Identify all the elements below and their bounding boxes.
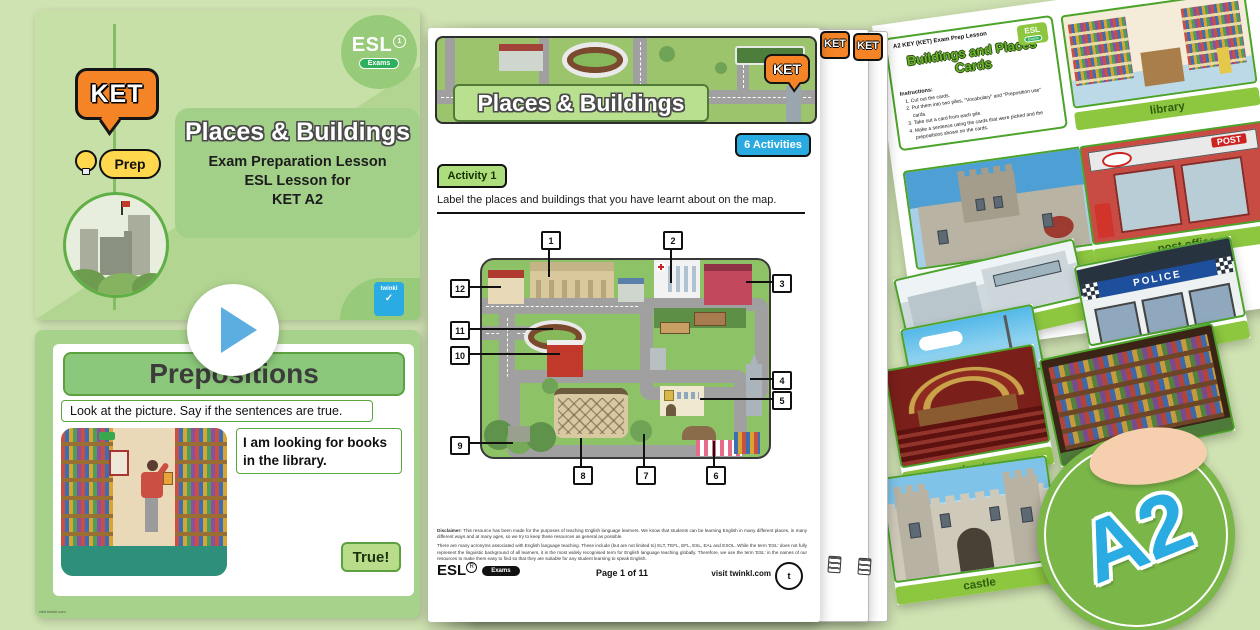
slide-footer-link: visit twinkl.com [39, 609, 66, 614]
bridge-illustration [682, 426, 716, 440]
worksheet-footer: ESLRExams Page 1 of 11 visit twinkl.com … [437, 562, 807, 588]
activities-count-badge: 6 Activities [735, 133, 811, 157]
sentence-box: I am looking for books in the library. [236, 428, 402, 474]
true-button[interactable]: True! [341, 542, 401, 572]
town-map [480, 258, 771, 459]
stamp-page2 [827, 556, 841, 574]
worksheet-title: Places & Buildings [453, 84, 709, 122]
map-label-5: 5 [772, 391, 792, 410]
map-label-6: 6 [706, 466, 726, 485]
castle-gatehouse-image [880, 455, 1061, 583]
park-hedge-illustration [654, 308, 746, 328]
footer-site-link: visit twinkl.com [711, 569, 771, 578]
esl-logo-text: ESL [1024, 25, 1041, 35]
activity-1-badge: Activity 1 [437, 164, 507, 188]
post-office-image: POST [1079, 121, 1260, 246]
esl-logo: ESL Exams [1016, 22, 1048, 46]
lesson-subtitle-1: Exam Preparation Lesson [175, 153, 420, 172]
map-label-4: 4 [772, 371, 792, 390]
resource-preview-canvas: A2 KEY (KET) Exam Prep Lesson ESL Exams … [0, 0, 1260, 630]
water-tower-illustration [650, 348, 666, 370]
person-body [141, 472, 163, 498]
post-sign: POST [1211, 133, 1247, 148]
map-label-2: 2 [663, 231, 683, 250]
ket-tab-page3: KET [853, 33, 883, 61]
pink-building-illustration [704, 264, 752, 305]
stadium-illustration [562, 42, 628, 78]
pavilion-illustration [499, 44, 543, 71]
lesson-title: Places & Buildings [175, 118, 420, 147]
globe-theatre-illustration [554, 388, 628, 438]
slide-content-panel: Prepositions Look at the picture. Say if… [53, 344, 414, 596]
esl-exams-pill: Exams [359, 58, 400, 69]
person-legs [145, 498, 158, 532]
card-post-office: POST post office [1079, 121, 1260, 268]
title-slide: KET Prep ESL1 Exams Places & Buildings E… [35, 10, 420, 320]
level-badge: A2 [1037, 436, 1235, 630]
prep-badge: Prep [99, 149, 161, 179]
registered-mark-icon: 1 [393, 35, 406, 48]
esl-exams-pill: Exams [1024, 34, 1043, 43]
police-station-illustration [660, 386, 704, 416]
worksheet-page-1: Places & Buildings KET 6 Activities Acti… [428, 28, 820, 622]
slide-instruction: Look at the picture. Say if the sentence… [61, 400, 373, 422]
park-ruin-illustration [508, 426, 530, 442]
castle-vignette [63, 192, 169, 298]
hospital-illustration [654, 260, 700, 298]
market-stall-illustration [734, 432, 760, 454]
disclaimer-text-1: This resource has been made for the purp… [437, 528, 807, 539]
cards-instructions-panel: A2 KEY (KET) Exam Prep Lesson ESL Exams … [884, 15, 1068, 152]
esl-logo-text: ESL1 [352, 35, 406, 55]
museum-illustration [530, 262, 614, 298]
ket-badge: KET [75, 68, 159, 120]
stamp-page3 [857, 558, 871, 576]
ket-badge: KET [764, 54, 810, 84]
play-icon [221, 307, 257, 353]
book [163, 472, 173, 485]
play-button[interactable] [187, 284, 279, 376]
esl-logo: ESL1 Exams [341, 15, 417, 89]
map-label-10: 10 [450, 346, 470, 365]
disclaimer: Disclaimer: This resource has been made … [437, 528, 807, 565]
divider [437, 212, 805, 214]
exit-sign [99, 432, 115, 440]
house-illustration [618, 278, 644, 302]
lesson-subtitle-3: KET A2 [175, 191, 420, 210]
wall-frame [109, 450, 129, 476]
person-head [147, 460, 158, 471]
ket-tab-page2: KET [820, 31, 850, 59]
library-photo [61, 428, 227, 576]
lightbulb-icon [75, 150, 97, 172]
map-label-11: 11 [450, 321, 470, 340]
map-label-9: 9 [450, 436, 470, 455]
disclaimer-text-2: There are many acronyms associated with … [437, 543, 807, 562]
map-label-7: 7 [636, 466, 656, 485]
worksheet-header-illustration: Places & Buildings KET [435, 36, 817, 124]
twinkl-stamp-icon: t [775, 562, 803, 590]
skyscraper-illustration [746, 364, 762, 416]
post-office-illustration [547, 340, 583, 377]
library-floor [61, 546, 227, 576]
map-label-8: 8 [573, 466, 593, 485]
map-label-12: 12 [450, 279, 470, 298]
activity-instruction: Label the places and buildings that you … [437, 194, 807, 206]
card-library: library [1060, 0, 1260, 131]
map-label-3: 3 [772, 274, 792, 293]
twinkl-logo: twinkl [374, 282, 404, 316]
lesson-subtitle-2: ESL Lesson for [175, 172, 420, 191]
title-panel: Places & Buildings Exam Preparation Less… [175, 108, 420, 238]
map-label-1: 1 [541, 231, 561, 250]
disclaimer-label: Disclaimer: [437, 528, 462, 533]
